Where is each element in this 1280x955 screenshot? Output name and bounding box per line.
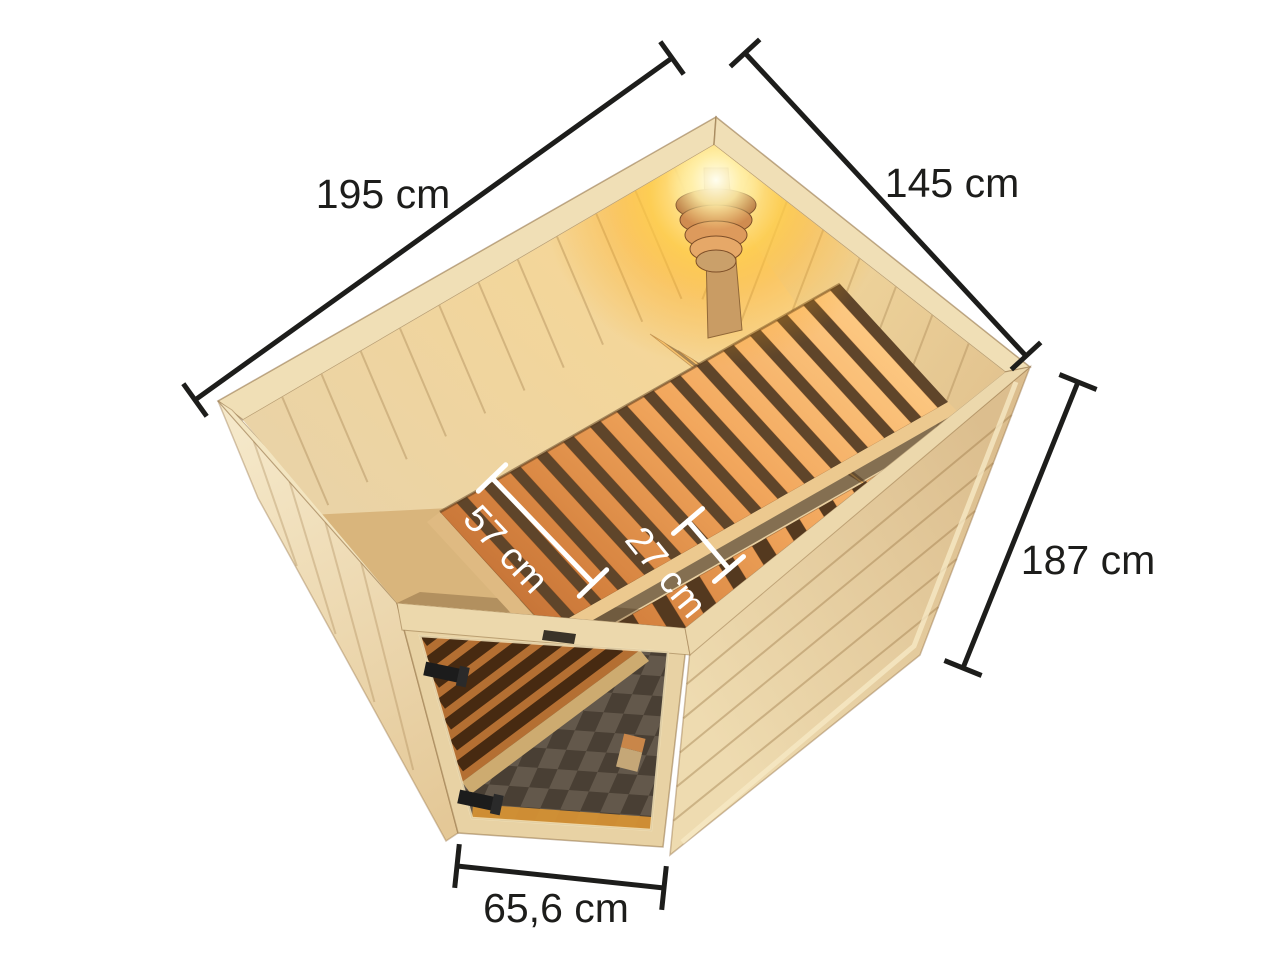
dimension-tick xyxy=(455,844,460,888)
dimension-tick xyxy=(660,42,683,75)
dimension-label: 195 cm xyxy=(316,171,450,217)
dimension-tick xyxy=(662,866,667,910)
dimension-label: 187 cm xyxy=(1021,537,1155,583)
dimension-door-width: 65,6 cm xyxy=(455,844,667,931)
dimension-tick xyxy=(183,384,206,417)
sauna-illustration: 57 cm 27 cm 195 cm 145 cm 187 cm 65,6 cm xyxy=(0,0,1280,955)
dimension-label: 145 cm xyxy=(885,160,1019,206)
dimension-label: 65,6 cm xyxy=(483,885,629,931)
sauna-dimension-diagram: 57 cm 27 cm 195 cm 145 cm 187 cm 65,6 cm xyxy=(0,0,1280,955)
